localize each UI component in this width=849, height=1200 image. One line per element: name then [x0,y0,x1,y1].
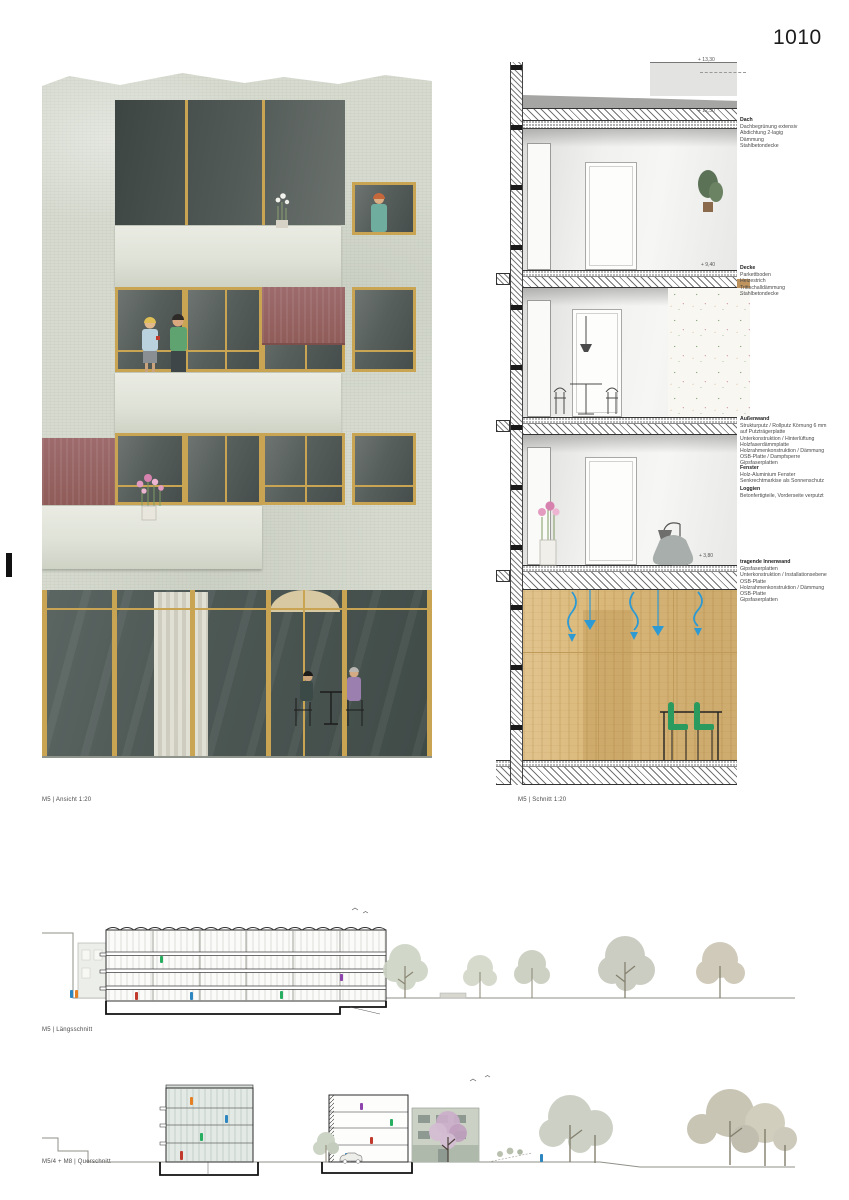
trees [383,936,745,998]
presentation-board: 1010 [0,0,849,1200]
annotation-line: Senkrechtmarkise als Sonnenschutz [740,478,835,484]
annotation-line: Stahlbetondecke [740,143,835,149]
bistro-set [554,316,618,414]
annotation-block-dach: Dach Dachbegrünung extensivAbdichtung 2-… [740,117,835,149]
pendant-lamps [584,590,664,636]
longitudinal-section-drawing [40,898,820,1033]
datum-dash-line [700,72,746,73]
basement-diagonal [350,1007,380,1014]
annotation-block-innenwand: tragende Innenwand GipsfaserplattenUnter… [740,559,835,603]
annotation-title: Dach [740,117,835,123]
balcony-slab-stub [496,570,510,582]
annotation-block-decke: Decke ParkettbodenHeizestrichTrittschall… [740,265,835,297]
balcony-slab-stub [496,420,510,432]
page-number: 1010 [773,26,822,50]
annotation-line: Betonfertigteile, Vorderseite verputzt [740,493,835,499]
elevation-marker: + 13,30 [698,57,715,63]
facade-elevation-drawing [42,70,432,758]
person-figure [371,193,387,232]
registration-mark [6,553,12,577]
pink-flower-vase [137,474,164,520]
annotation-block-fenster: Fenster Holz-Aluminium FensterSenkrechtm… [740,465,835,485]
annotation-title: Decke [740,265,835,271]
main-building-section [70,928,386,1002]
balcony-slab-stub [496,273,510,285]
caption-schnitt: M5 | Schnitt 1:20 [518,797,566,803]
elevation-marker: + 12,50 [698,108,715,114]
green-chairs-table [660,702,722,760]
annotation-line: Unterkonstruktion / Installationsebene [740,572,835,578]
building-section-drawing [510,62,737,785]
annotation-title: Fenster [740,465,835,471]
cafe-scene [294,667,364,726]
cross-section-drawing [40,1053,830,1188]
facade-figures-overlay [42,70,432,756]
annotation-title: Außenwand [740,416,835,422]
caption-ansicht: M5 | Ansicht 1:20 [42,797,91,803]
annotation-line: Gipsfaserplatten [740,597,835,603]
elevation-marker: + 9,40 [701,262,715,268]
flower-vase [538,501,560,565]
annotation-title: Loggien [740,486,835,492]
bench [440,993,466,998]
person-figure [170,314,187,372]
glass-building-section [160,1085,258,1175]
tree-cluster-gray [539,1095,613,1163]
slope-planting [488,1148,543,1162]
blue-ventilation-arrows [568,592,702,642]
annotation-title: tragende Innenwand [740,559,835,565]
birds [470,1076,490,1082]
white-flower-pot [276,193,290,228]
tree-cluster-tan [687,1089,797,1166]
annotation-line: Stahlbetondecke [740,291,835,297]
potted-plant [698,170,723,212]
annotation-block-aussenwand: Außenwand Strukturputz / Rollputz Körnun… [740,416,835,467]
annotation-block-loggien: Loggien Betonfertigteile, Vorderseite ve… [740,486,835,499]
elevation-marker: + 3,80 [699,553,713,559]
birds [352,908,368,913]
white-building-section [322,1095,412,1173]
person-figure [142,317,160,372]
section-furniture-overlay [510,62,737,785]
basement-outline [106,1001,386,1014]
lounge-chair [653,535,693,565]
